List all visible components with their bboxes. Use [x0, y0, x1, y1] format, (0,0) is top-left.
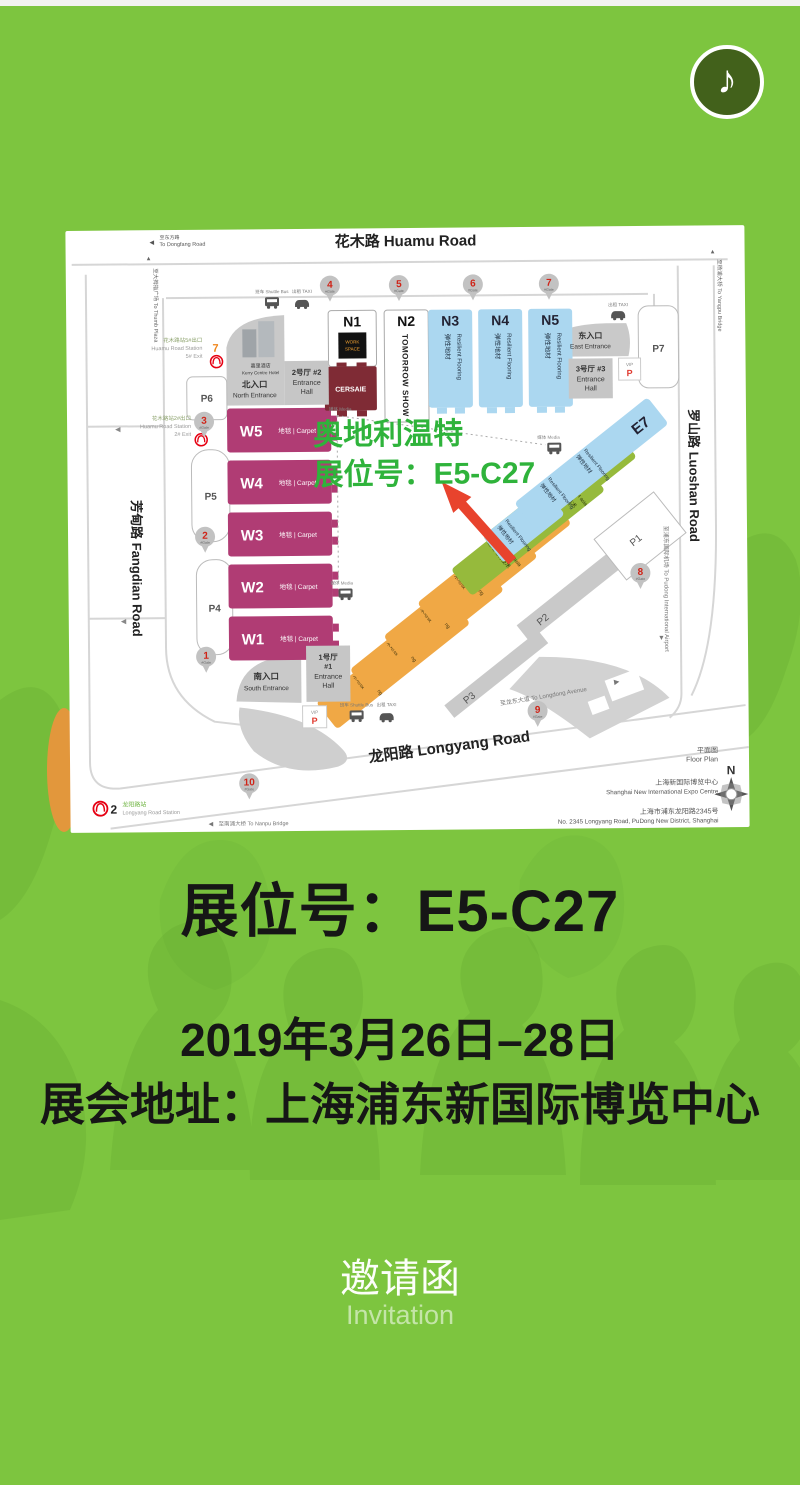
- svg-text:2# Exit: 2# Exit: [174, 432, 191, 438]
- svg-text:展位号：E5-C27: 展位号：E5-C27: [313, 456, 535, 492]
- svg-text:#Gate: #Gate: [200, 541, 210, 545]
- svg-text:No. 2345 Longyang Road, PuDong: No. 2345 Longyang Road, PuDong New Distr…: [558, 817, 719, 825]
- svg-text:#Gate: #Gate: [244, 787, 254, 791]
- svg-text:W1: W1: [242, 631, 265, 648]
- booth-overlay: 奥地利温特 展位号：E5-C27: [313, 416, 535, 492]
- svg-text:龙阳路站: 龙阳路站: [122, 800, 146, 808]
- svg-text:Floor Plan: Floor Plan: [686, 756, 718, 763]
- entrance-hall-2: 2号厅 #2 Entrance Hall: [285, 361, 329, 405]
- metro-huamu-exit5: 花木路站5#出口 Huamu Road Station 5# Exit 7: [151, 336, 222, 369]
- expo-floorplan-map: P2 P3 P1 P6 P5 P4 P7: [65, 225, 749, 833]
- svg-text:P7: P7: [652, 344, 665, 355]
- svg-text:#Gate: #Gate: [325, 290, 335, 294]
- svg-text:花木路站2#出口: 花木路站2#出口: [152, 414, 191, 422]
- svg-text:班车 Shuttle Bus: 班车 Shuttle Bus: [255, 288, 289, 295]
- svg-text:VIP: VIP: [311, 710, 318, 715]
- svg-text:TOMORROW SHOW: TOMORROW SHOW: [400, 334, 410, 417]
- map-legend: 平面图 Floor Plan 上海新国际博览中心 Shanghai New In…: [557, 746, 719, 825]
- metro-longyang-station: 2 龙阳路站 Longyang Road Station: [93, 800, 180, 817]
- bus-icon: [339, 588, 353, 600]
- svg-text:Resilient Flooring: Resilient Flooring: [505, 333, 511, 379]
- svg-text:N: N: [727, 763, 736, 777]
- svg-text:至大拇指广场 To Thumb Plaza: 至大拇指广场 To Thumb Plaza: [152, 268, 161, 343]
- svg-text:N1: N1: [343, 313, 361, 329]
- vip-parking-east: VIP P: [619, 358, 641, 380]
- hall-n5: N5 弹性地材 Resilient Flooring: [528, 309, 573, 413]
- hall-w3: W3 地毯 | Carpet: [228, 512, 338, 557]
- svg-text:5# Exit: 5# Exit: [186, 354, 203, 360]
- invitation-title-en: Invitation: [0, 1300, 800, 1331]
- svg-text:上海市浦东龙阳路2345号: 上海市浦东龙阳路2345号: [640, 806, 719, 816]
- svg-text:Hall: Hall: [585, 385, 598, 392]
- svg-text:南入口: 南入口: [253, 671, 279, 681]
- svg-text:出租 TAXI: 出租 TAXI: [292, 288, 312, 295]
- svg-text:1号厅: 1号厅: [318, 653, 338, 662]
- svg-text:South Entrance: South Entrance: [244, 685, 289, 692]
- svg-text:出租 TAXI: 出租 TAXI: [608, 301, 628, 308]
- svg-text:3号厅 #3: 3号厅 #3: [576, 364, 606, 373]
- direction-yangpu: ▲ 至杨浦大桥 To Yangpu Bridge: [710, 249, 725, 331]
- direction-thumb-plaza: ▲ 至大拇指广场 To Thumb Plaza: [146, 256, 161, 343]
- taxi-icon: [380, 713, 394, 722]
- svg-text:Entrance: Entrance: [314, 674, 342, 681]
- hall-n4: N4 弹性地材 Resilient Flooring: [478, 309, 523, 413]
- invitation-page: ♪: [0, 0, 800, 1485]
- svg-text:N2: N2: [397, 313, 415, 329]
- status-strip: [0, 0, 800, 6]
- parking-p7: P7: [638, 306, 679, 388]
- svg-text:Kerry Centre Hotel: Kerry Centre Hotel: [242, 370, 279, 375]
- invitation-title-zh: 邀请函: [0, 1246, 800, 1304]
- bus-icon: [547, 443, 561, 455]
- north-shuttle-taxi: 班车 Shuttle Bus 出租 TAXI: [255, 288, 312, 310]
- svg-text:East Entrance: East Entrance: [570, 343, 611, 350]
- entrance-hall-3: 3号厅 #3 Entrance Hall: [569, 358, 613, 398]
- metro-line-2: 2: [110, 803, 117, 817]
- metro-line-7: 7: [212, 343, 218, 355]
- svg-text:地毯 | Carpet: 地毯 | Carpet: [279, 478, 317, 487]
- svg-text:Resilient Flooring: Resilient Flooring: [555, 333, 561, 379]
- svg-text:SPACE: SPACE: [345, 346, 360, 351]
- left-arrow-icon: ◀: [209, 822, 214, 828]
- svg-text:P5: P5: [205, 492, 218, 503]
- svg-text:#Gate: #Gate: [199, 426, 209, 430]
- svg-text:弹性地材: 弹性地材: [543, 333, 552, 360]
- svg-text:#Gate: #Gate: [533, 715, 543, 719]
- direction-dongfang: ◀ 至东方路 To Dongfang Road: [149, 234, 205, 248]
- svg-text:N3: N3: [441, 313, 459, 329]
- svg-text:N4: N4: [491, 312, 509, 328]
- svg-text:地毯 | Carpet: 地毯 | Carpet: [280, 582, 318, 591]
- vip-parking-south: VIP P: [303, 706, 327, 728]
- svg-text:出租 TAXI: 出租 TAXI: [377, 701, 397, 708]
- taxi-icon: [295, 300, 309, 309]
- svg-text:VIP: VIP: [626, 362, 633, 367]
- svg-text:#Gate: #Gate: [201, 661, 211, 665]
- direction-nanpu: ◀ 至南浦大桥 To Nanpu Bridge: [209, 819, 289, 828]
- svg-text:东入口: 东入口: [578, 330, 602, 340]
- svg-text:至杨浦大桥 To Yangpu Bridge: 至杨浦大桥 To Yangpu Bridge: [716, 259, 725, 331]
- svg-text:平面图: 平面图: [697, 746, 718, 754]
- hall-n3: N3 弹性地材 Resilient Flooring: [428, 309, 473, 413]
- svg-text:奥地利温特: 奥地利温特: [313, 417, 463, 452]
- svg-text:地毯 | Carpet: 地毯 | Carpet: [280, 634, 318, 643]
- event-address: 展会地址：上海浦东新国际博览中心: [0, 1068, 800, 1133]
- bus-icon: [265, 297, 279, 309]
- svg-text:N5: N5: [541, 312, 559, 328]
- svg-text:弹性地材: 弹性地材: [443, 334, 452, 361]
- up-arrow-icon: ▲: [710, 249, 716, 255]
- svg-text:W2: W2: [241, 579, 264, 596]
- up-arrow-icon: ▲: [146, 256, 152, 262]
- svg-text:#1: #1: [324, 664, 332, 671]
- left-arrow-icon: ◀: [121, 618, 127, 625]
- svg-text:W5: W5: [240, 423, 263, 440]
- svg-text:W4: W4: [240, 475, 263, 492]
- svg-text:P6: P6: [201, 394, 214, 405]
- svg-text:北入口: 北入口: [242, 379, 268, 389]
- svg-text:嘉里酒店: 嘉里酒店: [251, 362, 271, 369]
- hall-w2: W2 地毯 | Carpet: [228, 564, 338, 609]
- svg-text:媒体 Media: 媒体 Media: [330, 579, 353, 586]
- svg-text:至东方路: 至东方路: [159, 234, 179, 241]
- svg-text:Longyang Road Station: Longyang Road Station: [122, 810, 180, 817]
- down-arrow-icon: ▼: [658, 635, 665, 642]
- entrance-hall-1: 1号厅 #1 Entrance Hall: [306, 646, 350, 702]
- left-arrow-icon: ◀: [115, 426, 121, 433]
- svg-text:Shanghai New International Exp: Shanghai New International Expo Centre: [606, 788, 719, 796]
- svg-text:媒体 Media: 媒体 Media: [537, 434, 560, 441]
- svg-text:P: P: [627, 368, 633, 378]
- svg-text:至南浦大桥 To Nanpu Bridge: 至南浦大桥 To Nanpu Bridge: [219, 819, 289, 828]
- svg-text:North Entrance: North Entrance: [233, 392, 277, 399]
- svg-text:2号厅 #2: 2号厅 #2: [292, 368, 322, 377]
- music-button[interactable]: ♪: [690, 45, 764, 119]
- hall-n2: N2 TOMORROW SHOW: [384, 310, 429, 422]
- svg-text:#Gate: #Gate: [636, 577, 646, 581]
- svg-text:Hall: Hall: [322, 683, 335, 690]
- svg-text:花木路站5#出口: 花木路站5#出口: [163, 336, 202, 344]
- hall-n1: N1 WORK SPACE CERSAIE: [324, 310, 377, 416]
- svg-text:弹性地材: 弹性地材: [493, 333, 502, 360]
- floorplan-svg: P2 P3 P1 P6 P5 P4 P7: [65, 225, 749, 833]
- svg-text:Hall: Hall: [301, 389, 314, 396]
- svg-text:#Gate: #Gate: [394, 289, 404, 293]
- svg-text:#Gate: #Gate: [468, 288, 478, 292]
- bus-icon: [350, 710, 364, 722]
- svg-text:Huamu Road Station: Huamu Road Station: [151, 346, 202, 352]
- svg-text:Entrance: Entrance: [577, 376, 605, 383]
- left-arrow-icon: ◀: [149, 240, 154, 246]
- huamu-road-label: 花木路 Huamu Road: [335, 231, 477, 250]
- svg-text:Huamu Road Station: Huamu Road Station: [140, 424, 191, 430]
- fangdian-road-label: 芳甸路 Fangdian Road: [129, 500, 145, 637]
- svg-text:P: P: [312, 716, 318, 726]
- svg-text:Resilient Flooring: Resilient Flooring: [455, 334, 461, 380]
- svg-text:Entrance: Entrance: [293, 380, 321, 387]
- svg-text:上海新国际博览中心: 上海新国际博览中心: [655, 777, 718, 787]
- svg-text:地毯 | Carpet: 地毯 | Carpet: [278, 426, 316, 435]
- svg-text:CERSAIE: CERSAIE: [335, 386, 367, 393]
- music-note-icon: ♪: [717, 60, 737, 100]
- svg-text:#Gate: #Gate: [544, 288, 554, 292]
- luoshan-road-label: 罗山路 Luoshan Road: [686, 409, 702, 542]
- svg-text:P4: P4: [209, 604, 222, 615]
- svg-text:W3: W3: [241, 527, 264, 544]
- taxi-icon: [611, 311, 625, 320]
- event-date: 2019年3月26日–28日: [0, 1004, 800, 1070]
- svg-text:地毯 | Carpet: 地毯 | Carpet: [279, 530, 317, 539]
- svg-text:To Dongfang Road: To Dongfang Road: [159, 242, 205, 248]
- longyang-road-label: 龙阳路 Longyang Road: [367, 727, 531, 766]
- svg-text:WORK: WORK: [345, 339, 359, 344]
- compass-icon: N: [714, 763, 748, 811]
- booth-number-title: 展位号：E5-C27: [0, 864, 800, 948]
